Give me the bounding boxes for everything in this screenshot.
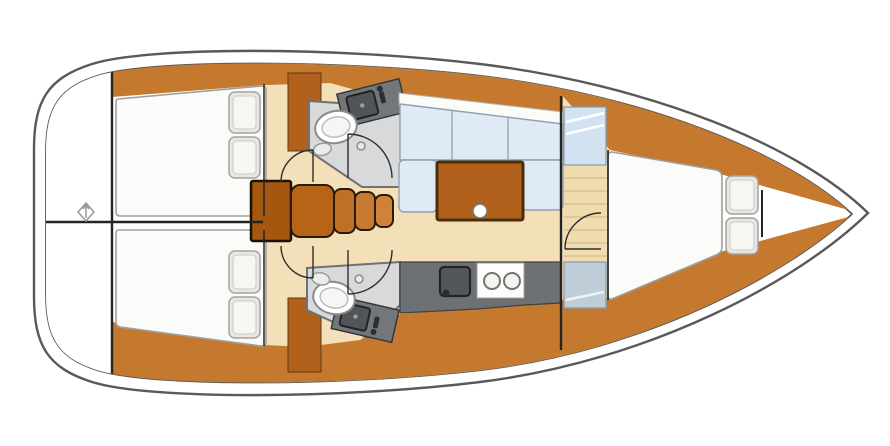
head-port-drain: [357, 142, 365, 150]
head-starboard-drain: [355, 275, 363, 283]
galley-faucet: [443, 290, 450, 297]
floorplan-canvas: [0, 0, 890, 446]
boat-floorplan: [0, 0, 890, 446]
settee-cushion-left: [399, 160, 437, 212]
stove-burner: [484, 273, 500, 289]
step: [291, 185, 334, 237]
table-cup-holder: [473, 204, 487, 218]
hanging-locker-port: [564, 107, 606, 165]
hanging-locker-starboard: [564, 262, 606, 308]
stove-burner: [504, 273, 520, 289]
step: [334, 189, 355, 233]
step: [375, 195, 393, 227]
step-landing: [251, 181, 291, 241]
step: [355, 192, 375, 230]
saloon-dinette: [399, 93, 563, 220]
